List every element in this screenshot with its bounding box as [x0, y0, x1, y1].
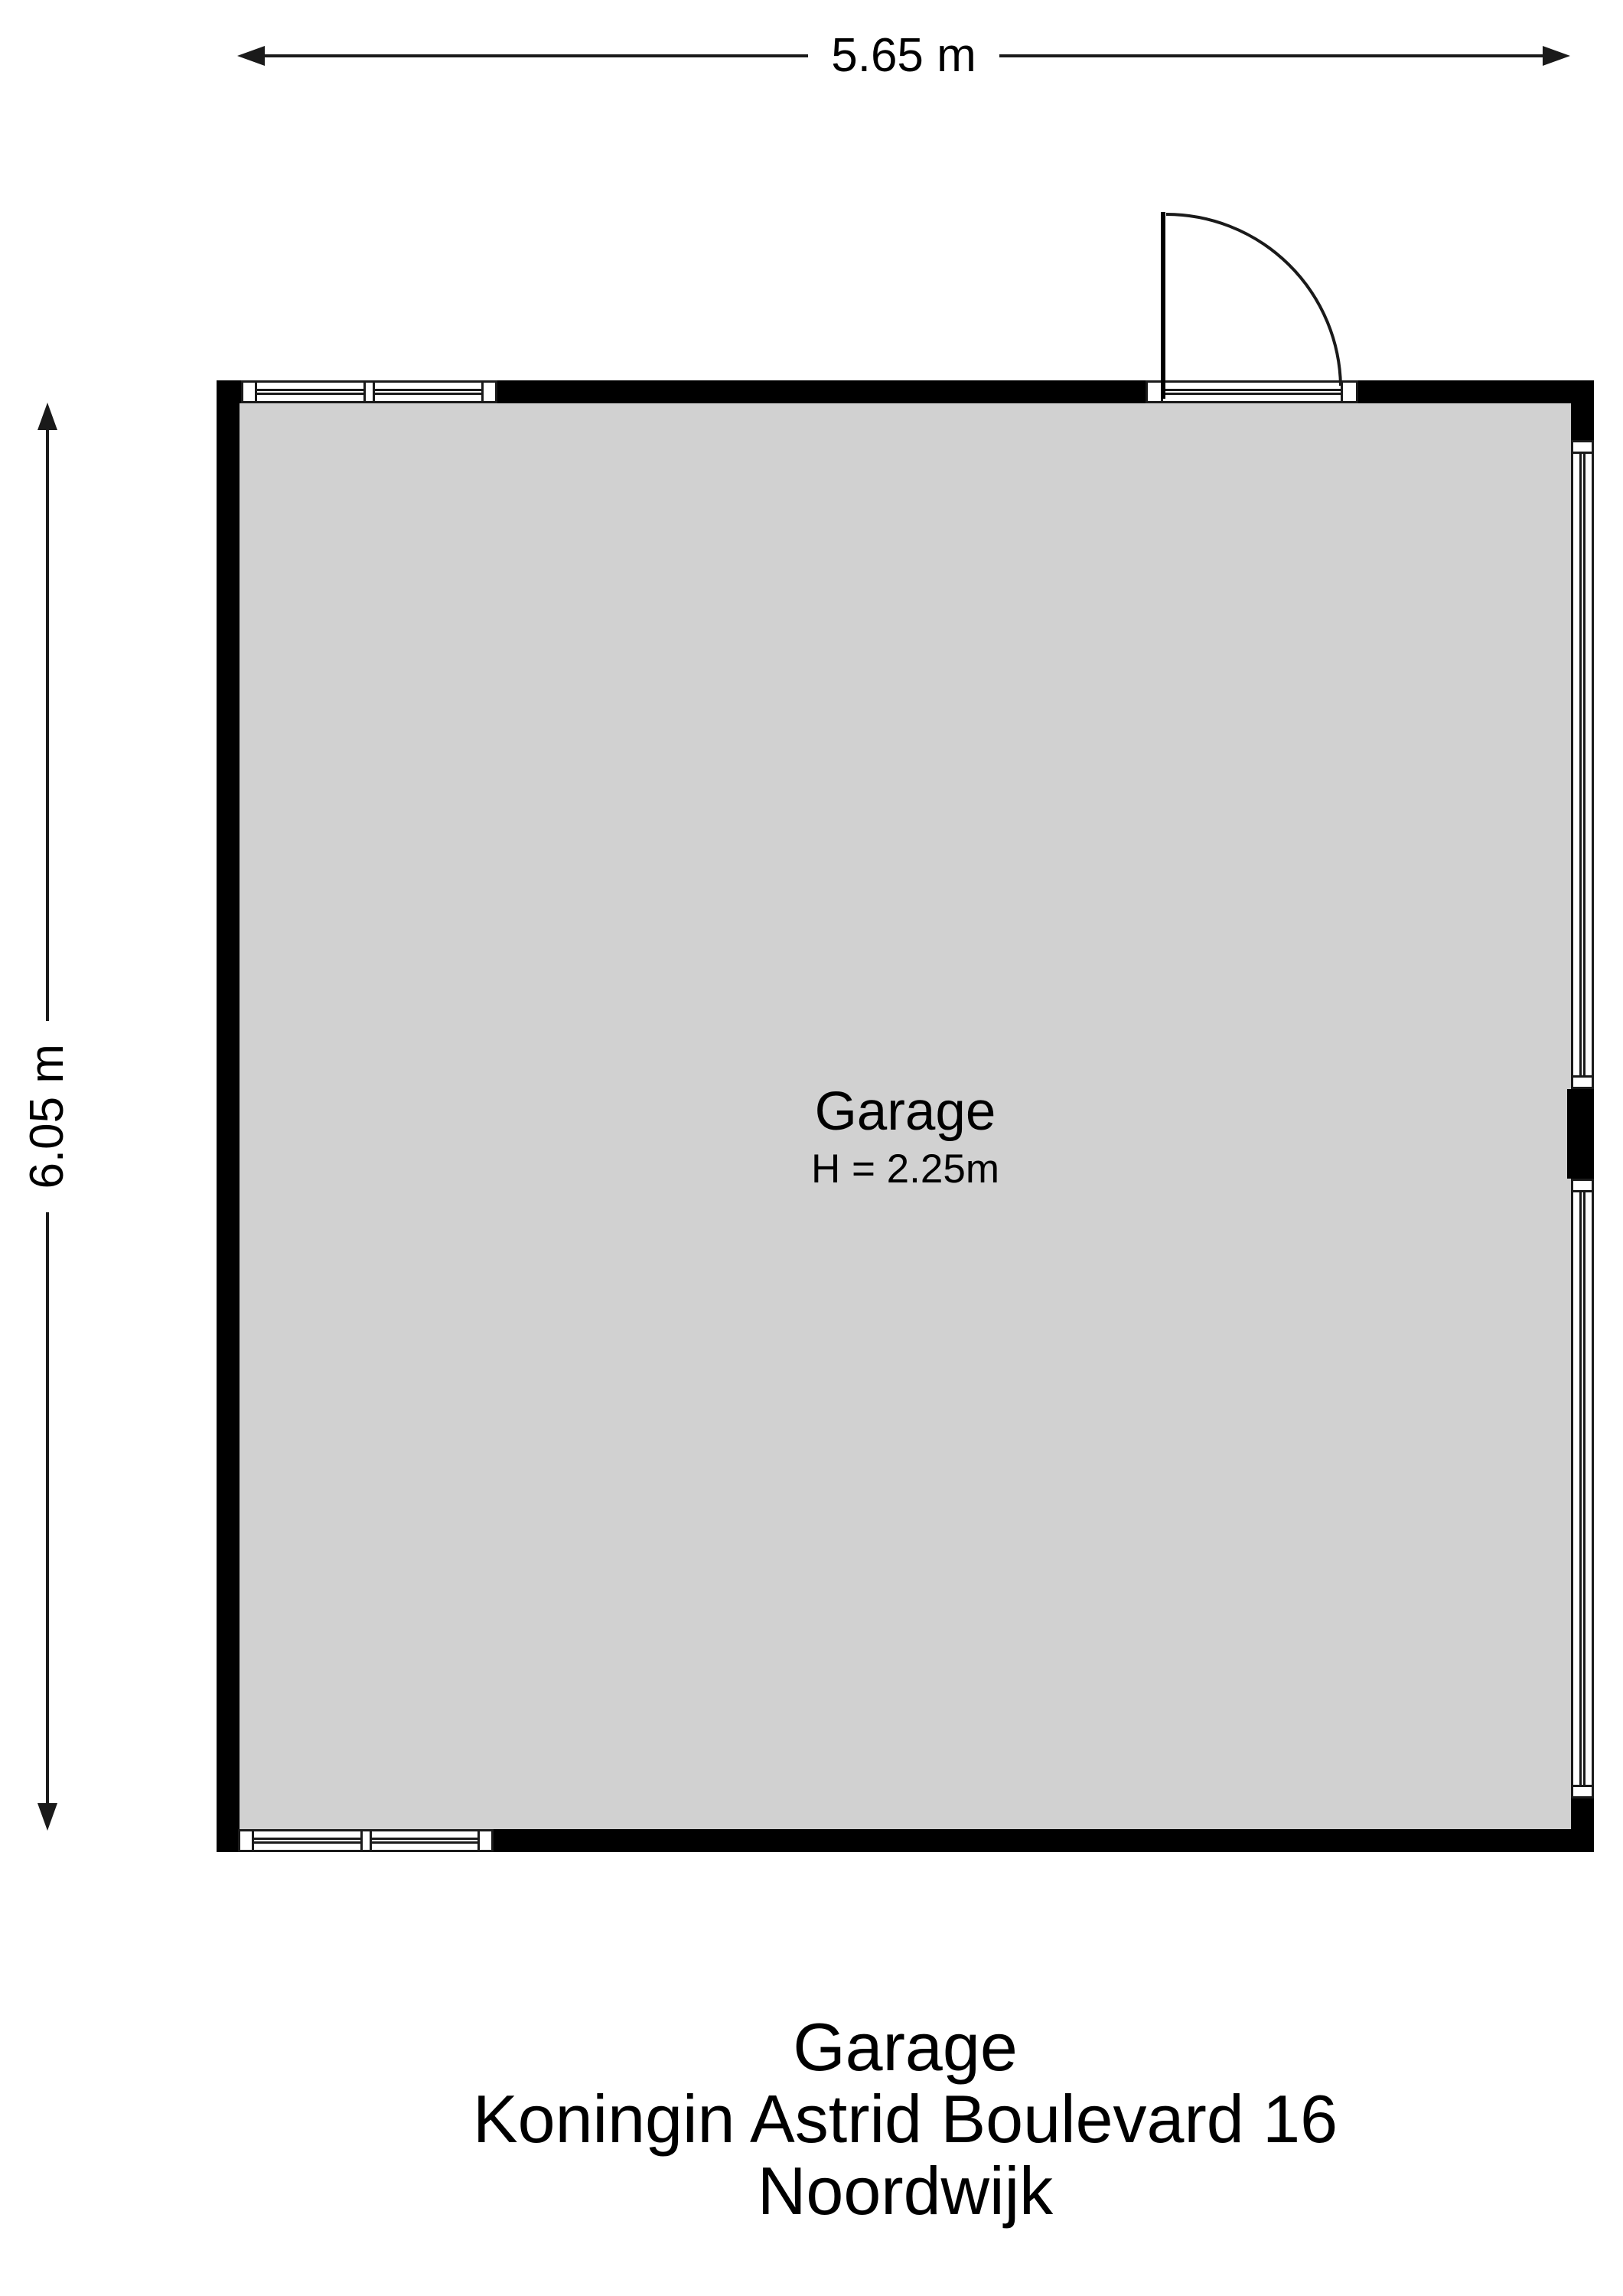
- dimension-line: [265, 54, 808, 57]
- window-mullion: [360, 1831, 372, 1850]
- window-pane: [257, 383, 363, 401]
- window-pane: [1573, 1192, 1592, 1785]
- window-post: [481, 383, 495, 401]
- arrow-right-icon: [1543, 46, 1570, 66]
- window-post: [1573, 1075, 1592, 1087]
- window-pane: [375, 383, 481, 401]
- door-jamb: [1148, 383, 1163, 401]
- plan-title-line2: Koningin Astrid Boulevard 16: [217, 2083, 1594, 2155]
- dimension-height: 6.05 m: [20, 403, 75, 1831]
- door-jamb: [1341, 383, 1356, 401]
- window-pane: [1573, 454, 1592, 1075]
- window-bottom-wall: [238, 1829, 494, 1852]
- dimension-line: [46, 430, 49, 1021]
- window-post: [1573, 1785, 1592, 1796]
- window-post: [477, 1831, 491, 1850]
- dimension-height-label: 6.05 m: [24, 1021, 71, 1212]
- arrow-up-icon: [37, 403, 57, 430]
- window-right-wall-upper: [1571, 440, 1594, 1089]
- window-post: [240, 1831, 254, 1850]
- window-pane: [254, 1831, 360, 1850]
- plan-title-line1: Garage: [217, 2011, 1594, 2083]
- door-swing-arc: [1166, 214, 1341, 386]
- dimension-line: [999, 54, 1543, 57]
- window-post: [243, 383, 257, 401]
- room-height-label: H = 2.25m: [240, 1146, 1571, 1192]
- window-top-wall: [241, 380, 497, 403]
- plan-title-line3: Noordwijk: [217, 2155, 1594, 2227]
- door-opening: [1146, 380, 1358, 403]
- arrow-left-icon: [237, 46, 265, 66]
- wall-right-middle-pier: [1567, 1089, 1594, 1179]
- dimension-width: 5.65 m: [237, 28, 1570, 83]
- arrow-down-icon: [37, 1803, 57, 1831]
- room-label-block: Garage H = 2.25m: [240, 1082, 1571, 1192]
- window-pane: [372, 1831, 478, 1850]
- window-mullion: [363, 383, 375, 401]
- room-name-label: Garage: [240, 1082, 1571, 1142]
- window-post: [1573, 1181, 1592, 1192]
- wall-left: [217, 380, 240, 1852]
- dimension-width-label: 5.65 m: [808, 32, 999, 80]
- dimension-line: [46, 1212, 49, 1803]
- window-right-wall-lower: [1571, 1179, 1594, 1799]
- plan-title-block: Garage Koningin Astrid Boulevard 16 Noor…: [217, 2011, 1594, 2227]
- door-threshold: [1163, 383, 1341, 401]
- window-post: [1573, 442, 1592, 454]
